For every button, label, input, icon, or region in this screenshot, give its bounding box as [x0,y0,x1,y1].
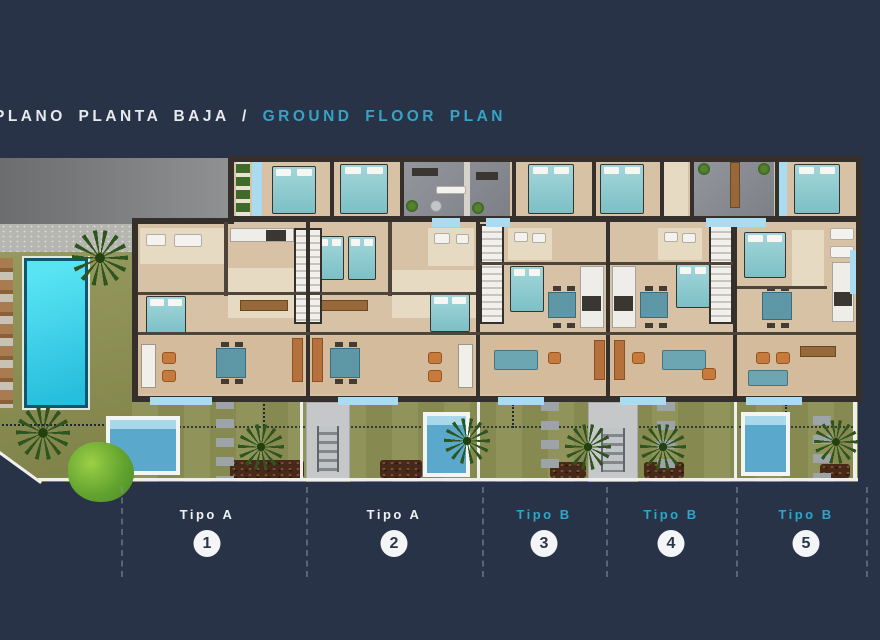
armchair [702,368,716,380]
unit-type-label-3: Tipo B [516,507,571,522]
title-english: GROUND FLOOR PLAN [263,108,506,125]
cooktop [834,292,852,306]
bush [68,442,134,502]
interior-wall [592,158,596,216]
armchair [162,370,176,382]
toilet [456,234,469,244]
garden-boundary-line [300,402,303,480]
double-bed [510,266,544,312]
cooktop [582,296,601,311]
site-boundary-line [38,478,858,481]
building-wall [132,218,232,224]
palm-tree [444,418,490,464]
armchair [428,352,442,364]
sideboard [312,338,323,382]
unit-number-badge-3: 3 [531,530,558,557]
palm-tree [16,406,70,460]
mulch-bed [380,460,422,478]
bench [436,186,466,194]
dining-table [548,292,576,318]
window-strip [746,397,802,405]
building-wall [228,158,234,224]
sofa [458,344,473,388]
window-strip [498,397,544,405]
partition-wall [224,222,228,296]
window-strip [338,397,398,405]
potted-plant [406,200,418,212]
party-wall [476,222,480,396]
single-bed [348,236,376,280]
window-strip [850,250,856,294]
round-table [430,200,442,212]
interior-wall [775,158,779,216]
dining-table [640,292,668,318]
sofa [494,350,538,370]
entry-stairs [317,426,339,472]
unit-number-badge-4: 4 [658,530,685,557]
double-bed [676,264,710,308]
sink [830,228,854,240]
armchair [776,352,790,364]
potted-plant [472,202,484,214]
interior-wall [400,158,404,216]
window-strip [432,218,460,227]
double-bed [794,164,840,214]
corridor [792,230,824,286]
potted-plant [698,163,710,175]
unit-separator-line [306,487,308,577]
partition-wall [610,262,733,265]
potted-plant [758,163,770,175]
palm-tree [238,424,284,470]
unit-separator-line [121,487,123,577]
window-strip [486,218,510,227]
partition-wall [310,292,476,295]
interior-wall [660,158,664,216]
sofa [662,350,706,370]
stair-core [709,224,733,324]
armchair [428,370,442,382]
gym-equipment [476,172,498,180]
dining-table [762,292,792,320]
sun-loungers [0,258,13,408]
plunge-pool-unit-5 [741,412,790,476]
wardrobe [240,300,288,311]
gym-equipment [412,168,438,176]
window-strip [706,218,766,227]
unit-type-label-1: Tipo A [180,507,235,522]
armchair [548,352,561,364]
sofa [141,344,156,388]
unit-separator-line [482,487,484,577]
page-title: PLANO PLANTA BAJA / GROUND FLOOR PLAN [0,108,506,126]
stepping-stone-path [216,400,234,478]
palm-tree [814,420,858,464]
palm-tree [72,230,128,286]
sideboard [614,340,625,380]
double-bed [744,232,786,278]
partition-wall [138,292,306,295]
privacy-screen [730,162,740,208]
sideboard [594,340,605,380]
sink [146,234,166,246]
bathtub [174,234,202,247]
building-wall [856,156,862,402]
double-bed [528,164,574,214]
double-bed [146,296,186,334]
stepping-stone-path [541,402,559,478]
console-table [800,346,836,357]
cooktop [614,296,633,311]
interior-wall [512,158,516,216]
building-wall [228,216,862,222]
palm-tree [565,424,611,470]
partition-wall [138,332,856,335]
armchair [632,352,645,364]
double-bed [340,164,388,214]
entry-hall [662,162,688,216]
sideboard [292,338,303,382]
unit-number-badge-1: 1 [194,530,221,557]
armchair [162,352,176,364]
title-divider: / [242,108,250,125]
street [0,158,228,224]
palm-tree [640,424,686,470]
building-wall [132,218,138,402]
party-wall [306,222,310,396]
double-bed [600,164,644,214]
sink [664,232,678,242]
window-strip [252,162,262,216]
unit-separator-line [606,487,608,577]
unit-separator-line [866,487,868,577]
partition-wall [480,262,606,265]
interior-wall [330,158,334,216]
garden-boundary-line [734,402,737,480]
communal-pool [24,258,88,408]
sink [514,232,528,242]
window-strip [150,397,212,405]
title-spanish: PLANO PLANTA BAJA [0,108,229,125]
double-bed [272,166,316,214]
sofa [748,370,788,386]
dining-table [330,348,360,378]
unit-separator-line [736,487,738,577]
building-wall [228,156,862,162]
unit-number-badge-2: 2 [381,530,408,557]
toilet [682,233,696,243]
partition-wall [388,222,392,296]
dining-table [216,348,246,378]
toilet [532,233,546,243]
window-strip [620,397,666,405]
unit-type-label-5: Tipo B [778,507,833,522]
unit-number-badge-5: 5 [793,530,820,557]
cooktop [266,230,286,241]
double-bed [430,294,470,332]
site-plan-scene: PLANO PLANTA BAJA / GROUND FLOOR PLAN [0,0,880,640]
party-wall [606,222,610,396]
stair-core [480,224,504,324]
partition-wall [737,286,827,289]
sink [434,233,450,244]
wardrobe [320,300,368,311]
interior-wall [690,158,694,216]
garden-dotted-divider [512,404,514,428]
planter-box [236,162,250,216]
armchair [756,352,770,364]
unit-type-label-2: Tipo A [367,507,422,522]
unit-type-label-4: Tipo B [643,507,698,522]
party-wall [733,222,737,396]
